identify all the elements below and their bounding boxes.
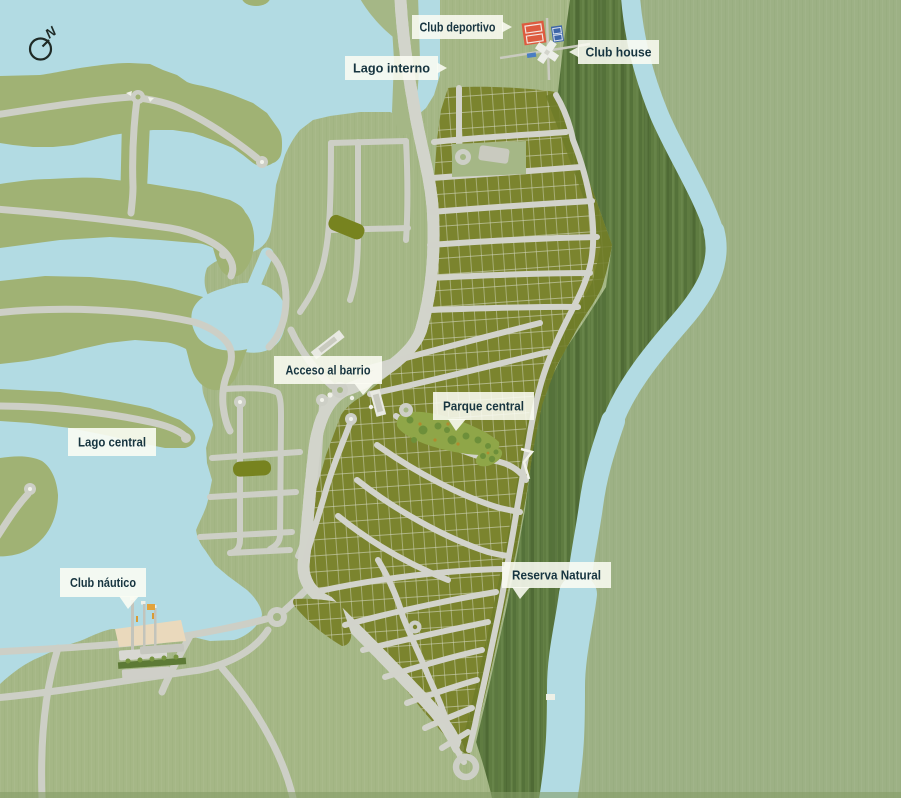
svg-text:Lago central: Lago central	[78, 436, 146, 450]
svg-text:Acceso al barrio: Acceso al barrio	[286, 364, 371, 378]
svg-text:Parque central: Parque central	[443, 400, 524, 414]
svg-text:Club náutico: Club náutico	[70, 576, 136, 590]
svg-text:Club deportivo: Club deportivo	[420, 21, 496, 35]
svg-text:Club house: Club house	[586, 46, 652, 60]
svg-text:Lago interno: Lago interno	[353, 62, 430, 76]
svg-text:Reserva Natural: Reserva Natural	[512, 569, 601, 583]
